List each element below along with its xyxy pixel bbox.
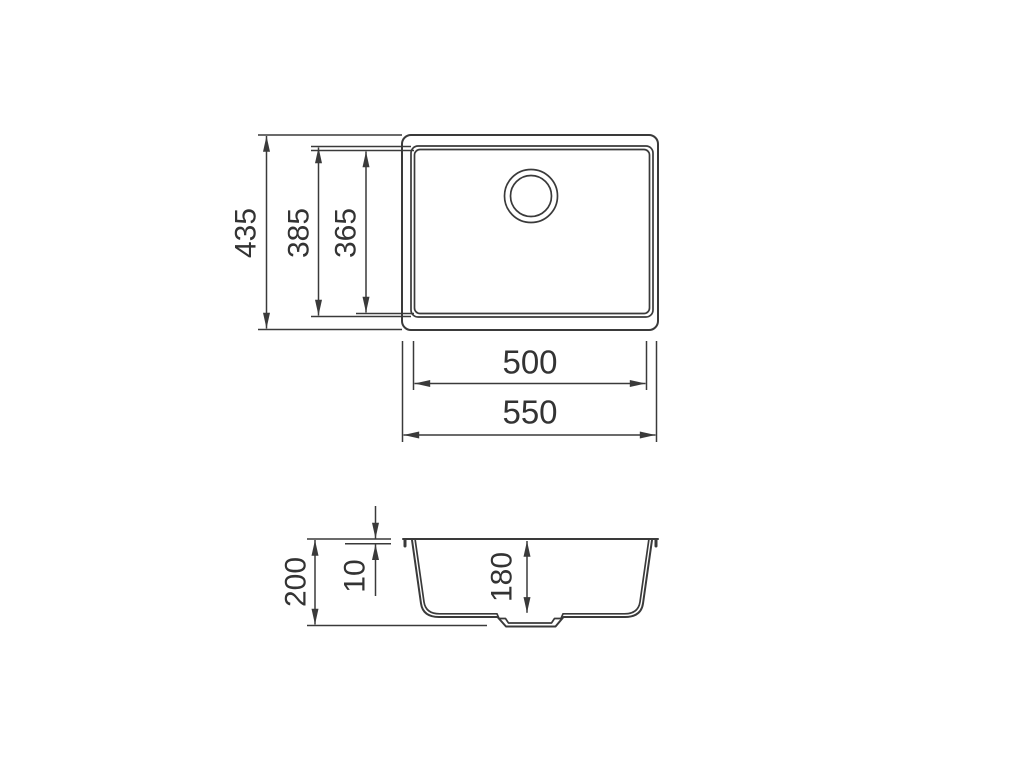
sink-outer-edge — [402, 135, 658, 330]
dim-label-overall-depth: 200 — [280, 557, 313, 607]
bowl-inner-profile — [415, 540, 649, 623]
dim-bowl-width: 500 — [414, 341, 647, 390]
drawing-page: 435 385 365 500 550 — [0, 0, 1024, 768]
sink-top-view — [402, 135, 658, 330]
dim-bowl-height: 365 — [311, 151, 414, 314]
dim-label-overall-height: 435 — [230, 208, 263, 258]
dim-label-overall-width: 550 — [502, 394, 557, 431]
sink-rim-outer-line — [411, 146, 653, 317]
drain-outer-circle — [505, 170, 558, 223]
dim-rim-thickness: 10 — [339, 506, 392, 596]
dim-label-bowl-depth: 180 — [486, 552, 519, 602]
sink-side-view — [403, 539, 658, 627]
dim-overall-height: 435 — [230, 135, 403, 330]
drain-inner-circle — [511, 176, 552, 217]
technical-drawing-canvas: 435 385 365 500 550 — [0, 0, 1024, 768]
dim-bowl-depth: 180 — [486, 541, 528, 613]
sink-rim-inner-line — [415, 150, 650, 314]
dim-label-bowl-width: 500 — [502, 344, 557, 381]
dim-label-bowl-height: 365 — [330, 208, 363, 258]
dim-label-rim-thickness: 10 — [339, 559, 372, 592]
dim-overall-depth: 200 — [280, 539, 488, 626]
dim-label-rim-height: 385 — [283, 208, 316, 258]
